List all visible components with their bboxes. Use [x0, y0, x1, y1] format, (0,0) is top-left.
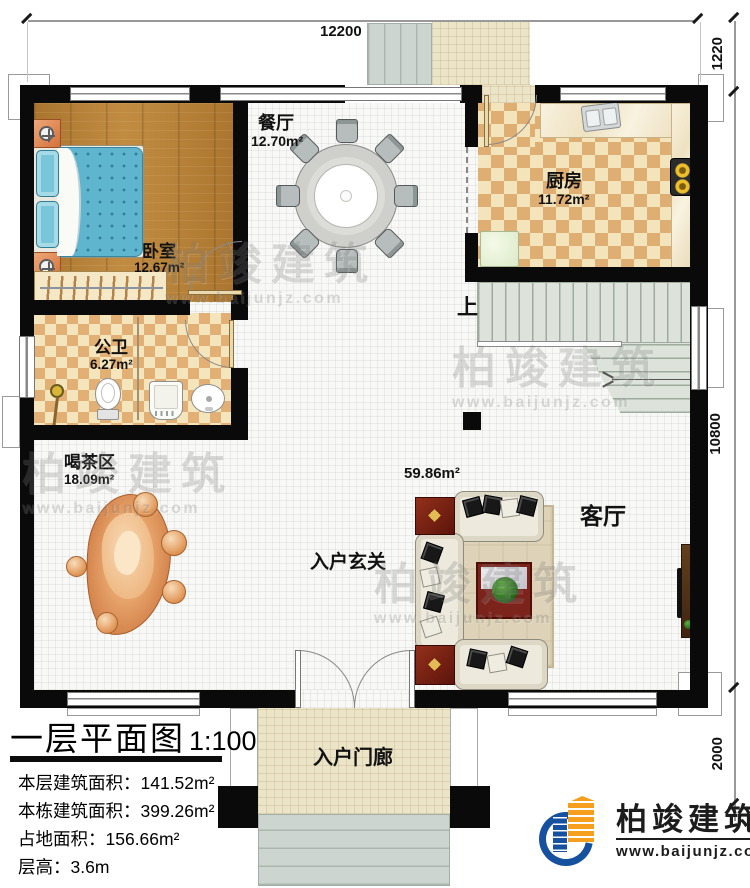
sofa-pillow: [466, 648, 487, 669]
wall-bathroom-south: [20, 425, 248, 440]
stairs-upper-flight: [477, 282, 693, 343]
bathroom-sink: [191, 384, 225, 413]
dim-tick: [692, 13, 703, 24]
room-area-kitchen: 11.72m²: [538, 192, 589, 207]
brand-logo-icon: [536, 796, 608, 870]
dim-text-right-bottom: 2000: [709, 737, 726, 770]
star-icon: [431, 512, 438, 519]
dining-chair: [394, 185, 418, 207]
toilet-seat: [101, 383, 115, 403]
window-sill-bottom-right: [508, 708, 657, 716]
wall-right: [690, 85, 708, 708]
toilet-tank: [97, 409, 119, 420]
star-icon: [431, 661, 438, 668]
info-label: 占地面积：: [18, 829, 106, 849]
entrance-door-leaf-left: [295, 650, 301, 708]
door-bathroom: [185, 320, 233, 368]
toilet-bowl: [95, 378, 121, 410]
extension-line: [27, 22, 28, 82]
extension-line: [700, 22, 701, 82]
wardrobe-rod: [40, 287, 163, 289]
door-leaf-bedroom: [188, 290, 242, 295]
stairs-railing: [477, 341, 622, 347]
dining-chair: [336, 249, 358, 273]
porch-column-right: [450, 786, 490, 828]
title-row: 一层平面图 1:100: [10, 712, 270, 760]
window-stairs: [691, 306, 707, 390]
logo-building-orange-icon: [568, 796, 594, 842]
window-kitchen: [560, 87, 666, 101]
window-bedroom: [70, 87, 190, 101]
door-arc: [298, 650, 355, 708]
room-area-tea-area: 18.09m²: [64, 473, 114, 487]
door-leaf-kitchen: [484, 95, 489, 147]
lamp-cross: [42, 135, 55, 137]
floor-plan-canvas: 卧室 12.67m² 餐厅 12.70m² 厨房 11.72m² 公卫 6.27…: [0, 0, 750, 888]
room-label-bedroom: 卧室: [142, 243, 176, 261]
info-value: 399.26m²: [141, 801, 215, 821]
title-block: 一层平面图 1:100 本层建筑面积：141.52m² 本栋建筑面积：399.2…: [10, 712, 270, 884]
tea-stool: [66, 556, 87, 577]
info-value: 156.66m²: [106, 829, 180, 849]
entrance-door-left: [298, 650, 355, 708]
dim-line-right: [734, 21, 736, 821]
info-line: 本层建筑面积：141.52m²: [18, 770, 214, 795]
window-tea-area: [67, 692, 200, 706]
side-table: [415, 497, 455, 535]
toilet: [94, 378, 122, 422]
brand-logo: 柏竣建筑 www.baijunjz.com: [536, 794, 746, 876]
rear-steps: [367, 23, 432, 85]
sink-basin: [602, 107, 618, 126]
lamp-cross: [42, 268, 55, 270]
entrance-door-leaf-right: [409, 650, 415, 708]
info-line: 占地面积：156.66m²: [18, 826, 179, 851]
dim-text-right-top: 1220: [709, 37, 726, 70]
room-label-living: 客厅: [580, 504, 626, 528]
tea-stool: [162, 580, 186, 604]
room-label-bathroom: 公卫: [94, 339, 128, 357]
shower: [149, 381, 183, 420]
window-living: [508, 692, 657, 706]
sink-faucet: [205, 407, 213, 411]
wall-bedroom-south: [20, 300, 190, 315]
coffee-table: [476, 562, 532, 619]
room-area-living: 59.86m²: [404, 466, 460, 482]
tea-stool: [96, 612, 118, 634]
kitchen-sink: [581, 102, 622, 132]
door-leaf-bathroom: [229, 320, 234, 368]
sofa-pillow: [482, 495, 503, 516]
wall-kitchen-left-upper: [465, 85, 478, 147]
dining-table-center: [340, 190, 352, 202]
door-arc: [354, 650, 411, 708]
kitchen-fridge: [480, 231, 519, 267]
shower-jets-icon: [155, 411, 177, 416]
info-line: 层高：3.6m: [18, 854, 109, 879]
dim-text-right-middle: 10800: [707, 413, 724, 455]
entrance-door-right: [354, 650, 411, 708]
structural-column: [463, 412, 481, 430]
sofa-pillow: [487, 653, 508, 674]
info-label: 本层建筑面积：: [18, 773, 141, 793]
room-label-entry-porch: 入户门廊: [313, 748, 393, 769]
wardrobe: [34, 271, 167, 303]
tea-stool: [161, 530, 187, 556]
stairs-direction-line: [612, 379, 696, 380]
sink-drain: [206, 396, 212, 402]
bathroom-partition: [137, 317, 139, 420]
door-arc: [185, 320, 233, 368]
stairs-up-label: 上: [457, 297, 478, 319]
room-label-tea-area: 喝茶区: [64, 454, 115, 472]
tea-stool: [133, 492, 158, 517]
logo-building-blue-icon: [553, 812, 567, 852]
brand-name: 柏竣建筑: [616, 794, 750, 839]
bed-pillow: [36, 201, 59, 248]
shower-tray: [154, 385, 178, 409]
room-area-bedroom: 12.67m²: [134, 261, 184, 275]
door-arc: [487, 95, 537, 145]
wall-kitchen-south: [465, 267, 708, 282]
window-dining: [220, 87, 462, 101]
info-label: 本栋建筑面积：: [18, 801, 141, 821]
door-arc: [190, 241, 242, 293]
tv-icon: [677, 568, 682, 618]
dim-text-top: 12200: [320, 23, 362, 40]
rear-porch-floor: [432, 21, 530, 85]
plant-icon: [492, 577, 518, 603]
room-area-dining: 12.70m²: [251, 134, 303, 149]
door-kitchen-rear: [487, 95, 537, 145]
entry-steps: [258, 814, 450, 886]
burner-icon: [675, 179, 690, 194]
burner-icon: [675, 163, 690, 178]
kitchen-cased-opening: [466, 147, 468, 233]
nightstand: [32, 119, 61, 148]
dining-chair: [336, 119, 358, 143]
room-label-foyer: 入户玄关: [310, 553, 386, 573]
dim-line-top: [28, 20, 695, 22]
room-label-kitchen: 厨房: [546, 172, 582, 191]
info-label: 层高：: [18, 857, 71, 877]
plan-scale: 1:100: [189, 726, 257, 757]
floor-mop-icon: [50, 384, 64, 398]
side-table: [415, 645, 455, 685]
sink-basin: [585, 109, 601, 128]
door-bedroom: [190, 241, 242, 293]
room-label-dining: 餐厅: [258, 114, 294, 133]
title-underline: [10, 756, 222, 762]
info-line: 本栋建筑面积：399.26m²: [18, 798, 214, 823]
bed-pillow: [36, 150, 59, 197]
brand-website: www.baijunjz.com: [616, 838, 750, 860]
info-value: 3.6m: [71, 857, 110, 877]
ac-platform-left: [2, 396, 20, 448]
info-value: 141.52m²: [141, 773, 215, 793]
window-bathroom: [19, 336, 35, 398]
sofa-pillow: [419, 566, 440, 587]
lamp-icon: [39, 126, 54, 141]
wall-bathroom-right-upper: [231, 300, 248, 320]
plan-title: 一层平面图: [10, 712, 185, 760]
room-area-bathroom: 6.27m²: [90, 358, 133, 372]
dining-chair: [276, 185, 300, 207]
